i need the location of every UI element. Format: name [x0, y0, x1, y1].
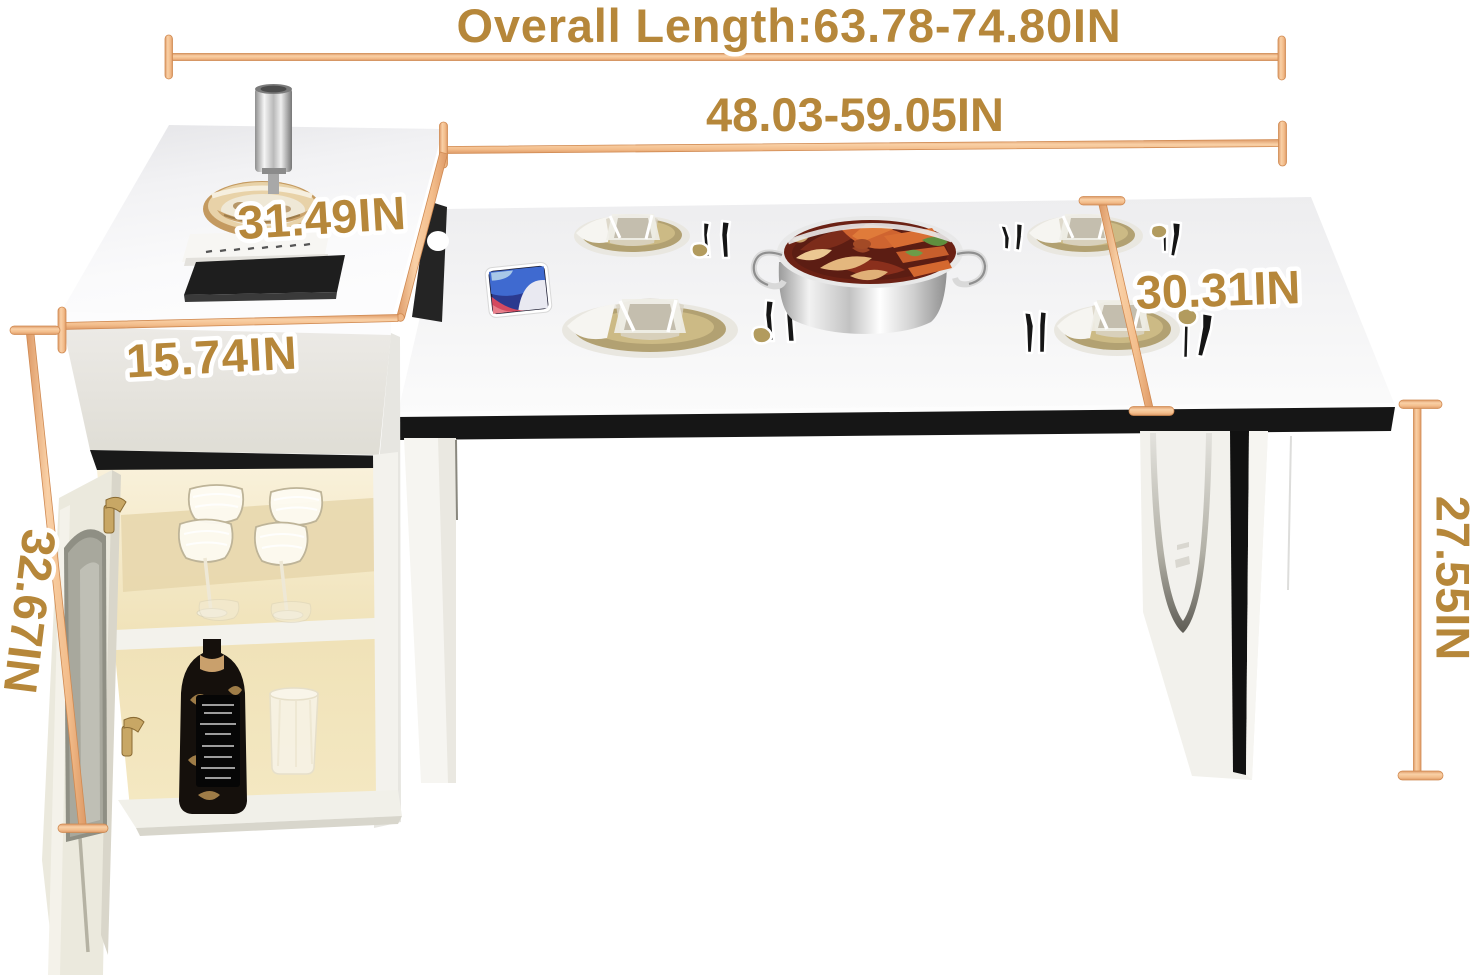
svg-text:31.49IN: 31.49IN — [236, 186, 408, 249]
svg-text:15.74IN: 15.74IN — [125, 326, 299, 388]
svg-text:Overall Length:63.78-74.80IN: Overall Length:63.78-74.80IN — [456, 0, 1121, 52]
svg-text:48.03-59.05IN: 48.03-59.05IN — [706, 88, 1004, 141]
svg-text:30.31IN: 30.31IN — [1135, 260, 1301, 319]
svg-text:27.55IN: 27.55IN — [1427, 496, 1474, 661]
